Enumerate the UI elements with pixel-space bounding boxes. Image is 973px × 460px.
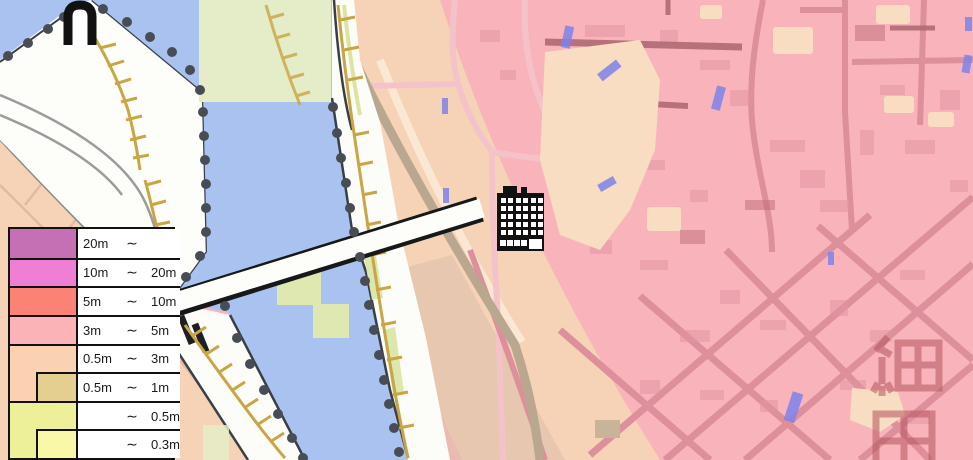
legend-min: 0.5m bbox=[83, 380, 119, 395]
legend-min: 20m bbox=[83, 236, 119, 251]
legend-swatch-inset bbox=[36, 429, 78, 458]
legend-min: 10m bbox=[83, 265, 119, 280]
legend-swatch-0.5m-3m bbox=[10, 344, 78, 373]
legend-row: ∼0.5m bbox=[10, 401, 180, 430]
legend-max: 0.3m bbox=[145, 437, 180, 452]
legend-tilde: ∼ bbox=[119, 350, 145, 367]
legend-row: 3m∼5m bbox=[10, 315, 180, 344]
legend-max: 0.5m bbox=[145, 409, 180, 424]
legend-swatch-under-0.3m bbox=[10, 429, 78, 458]
legend-swatch-inset bbox=[36, 372, 78, 401]
legend-swatch-5m-10m bbox=[10, 286, 78, 315]
legend-row: 20m∼ bbox=[10, 229, 180, 258]
legend-max: 5m bbox=[145, 323, 180, 338]
flood-depth-legend: 20m∼ 10m∼20m 5m∼10m 3m∼5m 0.5m∼3m 0.5m∼1… bbox=[8, 227, 175, 460]
legend-row: ∼0.3m bbox=[10, 429, 180, 458]
legend-min: 0.5m bbox=[83, 351, 119, 366]
legend-max: 3m bbox=[145, 351, 180, 366]
legend-row: 5m∼10m bbox=[10, 286, 180, 315]
monument-icon bbox=[68, 5, 92, 45]
legend-min: 5m bbox=[83, 294, 119, 309]
legend-tilde: ∼ bbox=[119, 379, 145, 396]
legend-tilde: ∼ bbox=[119, 235, 145, 252]
legend-swatch-3m-5m bbox=[10, 315, 78, 344]
legend-min: 3m bbox=[83, 323, 119, 338]
legend-tilde: ∼ bbox=[119, 293, 145, 310]
legend-max: 20m bbox=[145, 265, 180, 280]
legend-tilde: ∼ bbox=[119, 408, 145, 425]
legend-swatch-10m-20m bbox=[10, 258, 78, 287]
legend-row: 0.5m∼3m bbox=[10, 344, 180, 373]
legend-tilde: ∼ bbox=[119, 322, 145, 339]
legend-row: 10m∼20m bbox=[10, 258, 180, 287]
flood-hazard-map[interactable]: 細田 20m∼ 10m∼20m 5m∼10m 3m∼5m 0.5m∼3m 0.5… bbox=[0, 0, 973, 460]
legend-max: 10m bbox=[145, 294, 180, 309]
legend-tilde: ∼ bbox=[119, 436, 145, 453]
legend-tilde: ∼ bbox=[119, 264, 145, 281]
legend-swatch-under-0.5m bbox=[10, 401, 78, 430]
legend-row: 0.5m∼1m bbox=[10, 372, 180, 401]
apartment-building-icon[interactable] bbox=[497, 186, 544, 251]
legend-swatch-0.5m-1m bbox=[10, 372, 78, 401]
legend-max: 1m bbox=[145, 380, 180, 395]
legend-swatch-20m bbox=[10, 229, 78, 258]
